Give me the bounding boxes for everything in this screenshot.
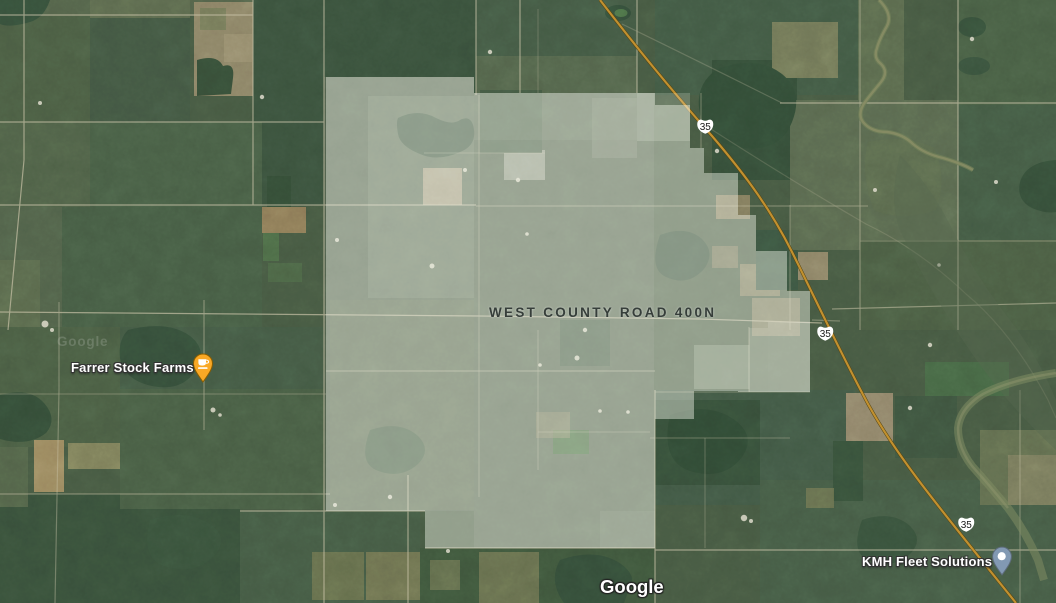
svg-text:35: 35 — [700, 122, 712, 133]
svg-text:35: 35 — [820, 329, 832, 340]
svg-text:35: 35 — [961, 520, 973, 531]
